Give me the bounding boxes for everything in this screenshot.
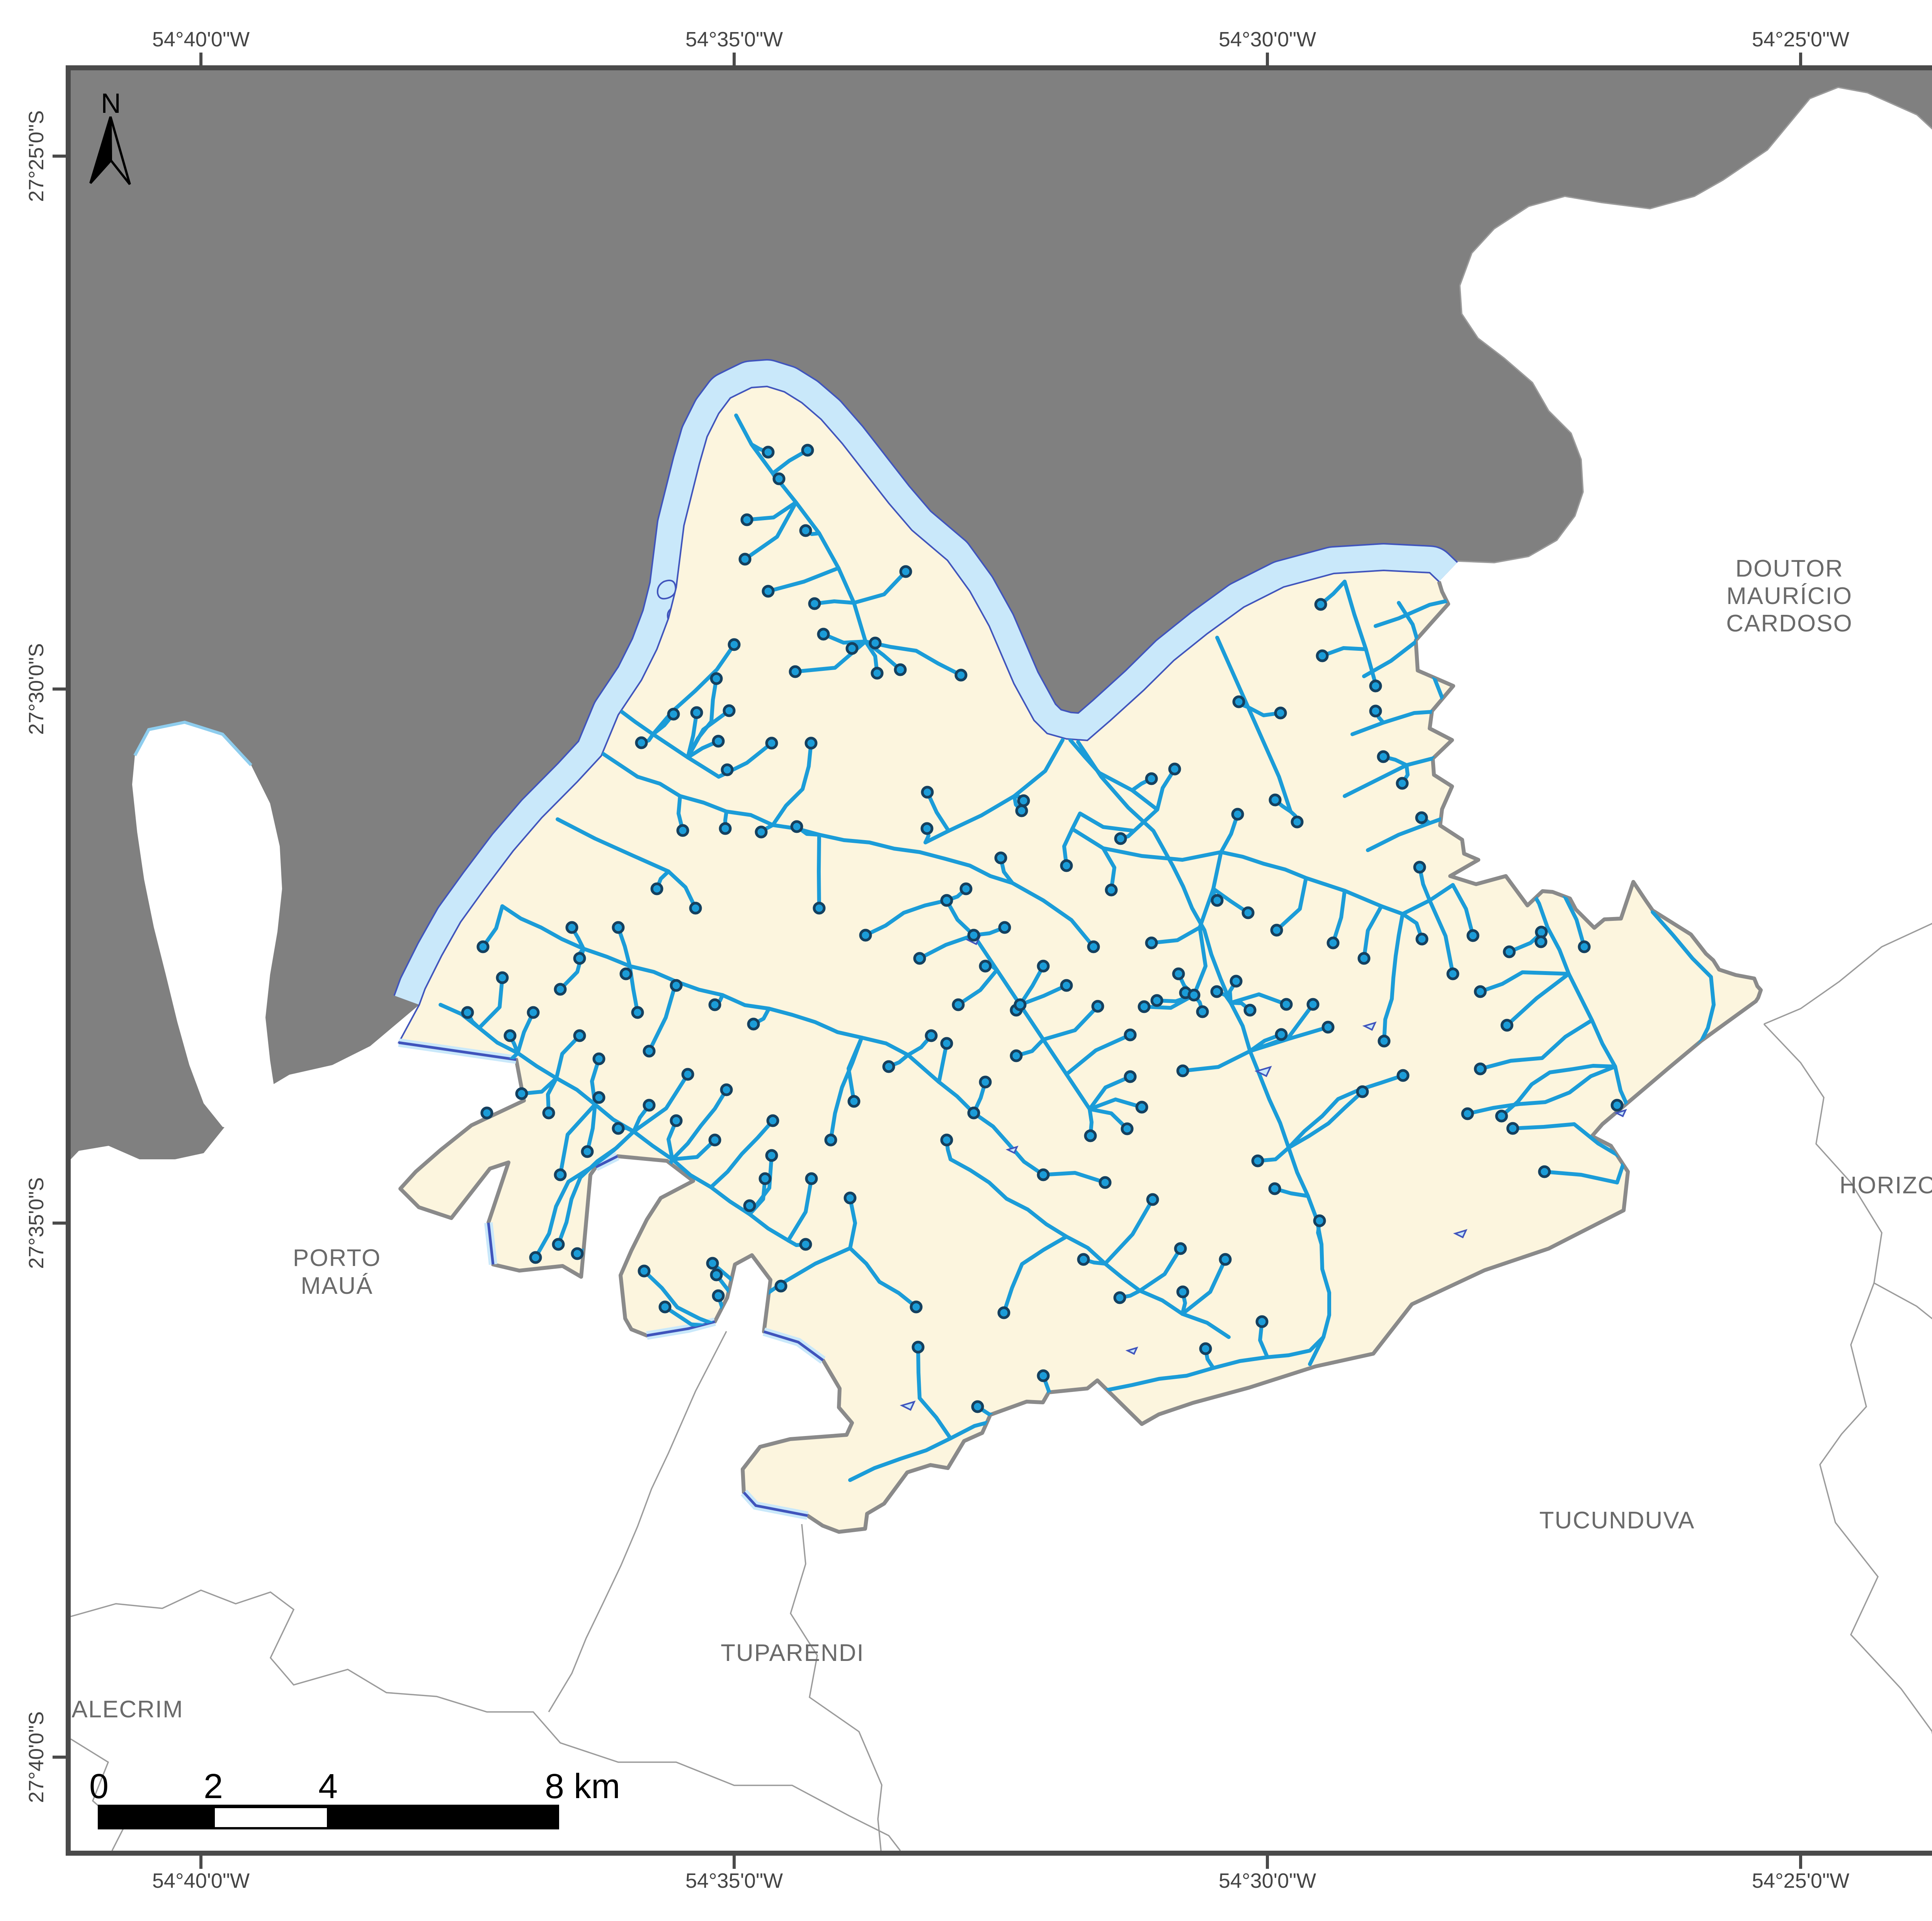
svg-text:N: N bbox=[101, 88, 121, 119]
svg-text:54°25'0"W: 54°25'0"W bbox=[1752, 1869, 1849, 1892]
svg-text:54°30'0"W: 54°30'0"W bbox=[1219, 1869, 1316, 1892]
svg-text:27°35'0"S: 27°35'0"S bbox=[25, 1177, 48, 1269]
svg-text:CARDOSO: CARDOSO bbox=[1726, 610, 1852, 637]
svg-text:ALECRIM: ALECRIM bbox=[71, 1696, 184, 1723]
svg-text:54°30'0"W: 54°30'0"W bbox=[1219, 28, 1316, 51]
svg-text:54°25'0"W: 54°25'0"W bbox=[1752, 28, 1849, 51]
svg-text:TUPARENDI: TUPARENDI bbox=[721, 1640, 864, 1666]
svg-text:HORIZONTINA: HORIZONTINA bbox=[1839, 1172, 1932, 1199]
svg-text:27°30'0"S: 27°30'0"S bbox=[25, 643, 48, 735]
svg-text:2: 2 bbox=[204, 1767, 223, 1806]
svg-text:TUCUNDUVA: TUCUNDUVA bbox=[1539, 1507, 1695, 1534]
svg-text:54°35'0"W: 54°35'0"W bbox=[685, 1869, 783, 1892]
svg-text:4: 4 bbox=[318, 1767, 338, 1806]
svg-text:PORTO: PORTO bbox=[293, 1245, 381, 1271]
svg-text:27°40'0"S: 27°40'0"S bbox=[25, 1711, 48, 1803]
svg-text:MAUÁ: MAUÁ bbox=[301, 1273, 373, 1299]
svg-text:0: 0 bbox=[89, 1767, 109, 1806]
svg-text:54°40'0"W: 54°40'0"W bbox=[152, 28, 250, 51]
svg-text:8 km: 8 km bbox=[545, 1767, 620, 1806]
svg-text:27°25'0"S: 27°25'0"S bbox=[25, 110, 48, 202]
svg-text:DOUTOR: DOUTOR bbox=[1735, 555, 1844, 582]
svg-text:54°35'0"W: 54°35'0"W bbox=[685, 28, 783, 51]
svg-text:MAURÍCIO: MAURÍCIO bbox=[1726, 583, 1852, 609]
svg-text:54°40'0"W: 54°40'0"W bbox=[152, 1869, 250, 1892]
